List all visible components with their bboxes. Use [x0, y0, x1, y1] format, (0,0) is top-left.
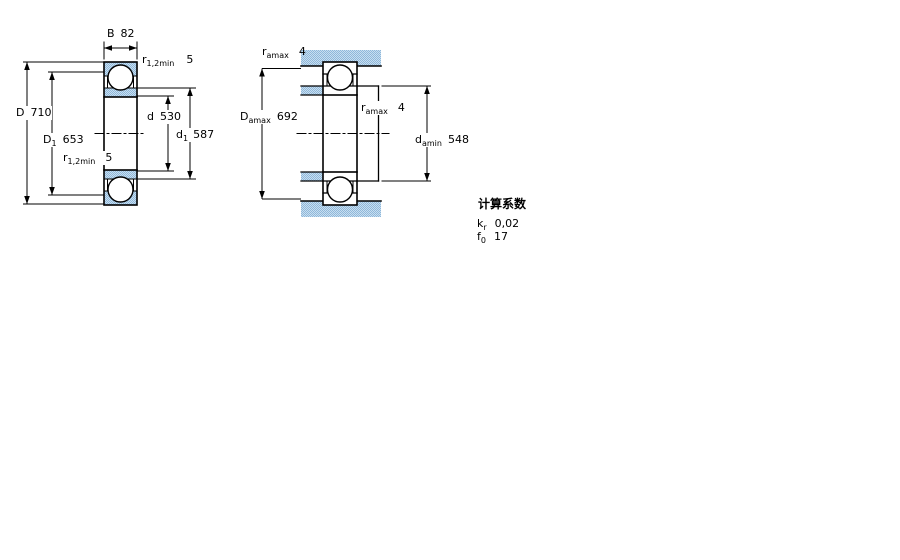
- dim-label-d: d530: [146, 110, 182, 124]
- ball-bottom: [108, 177, 133, 202]
- calculation-factors-title: 计算系数: [478, 195, 526, 212]
- dim-label-d1: d1587: [175, 128, 215, 142]
- shaft-shoulder-top: [301, 86, 323, 95]
- dim-label-Damax: Damax692: [239, 110, 299, 124]
- bearing-cross-section-figure: [95, 62, 146, 205]
- technical-drawing-canvas: [0, 0, 900, 560]
- dim-label-r-top: r1,2min5: [142, 53, 193, 67]
- ball-top: [108, 65, 133, 90]
- dim-label-B: B82: [107, 27, 135, 41]
- factor-row-kr: kr0,02: [477, 217, 519, 231]
- shaft-shoulder-bottom: [301, 172, 323, 181]
- factor-row-f0: f017: [477, 230, 508, 244]
- dim-label-damin: damin548: [414, 133, 470, 147]
- dim-label-D: D710: [15, 106, 52, 120]
- mounting-dimensions-figure: [297, 50, 389, 217]
- bearing-drawing-page: B82 r1,2min5 D710 D1653 r1,2min5 d530 d1…: [0, 0, 900, 560]
- ball-bottom: [328, 177, 353, 202]
- ball-top: [328, 65, 353, 90]
- dim-label-D1: D1653: [42, 133, 85, 147]
- dim-label-ramax-mid: ramax4: [360, 101, 406, 115]
- dim-label-ramax-top: ramax4: [262, 45, 306, 59]
- dim-label-r-bottom: r1,2min5: [62, 151, 113, 165]
